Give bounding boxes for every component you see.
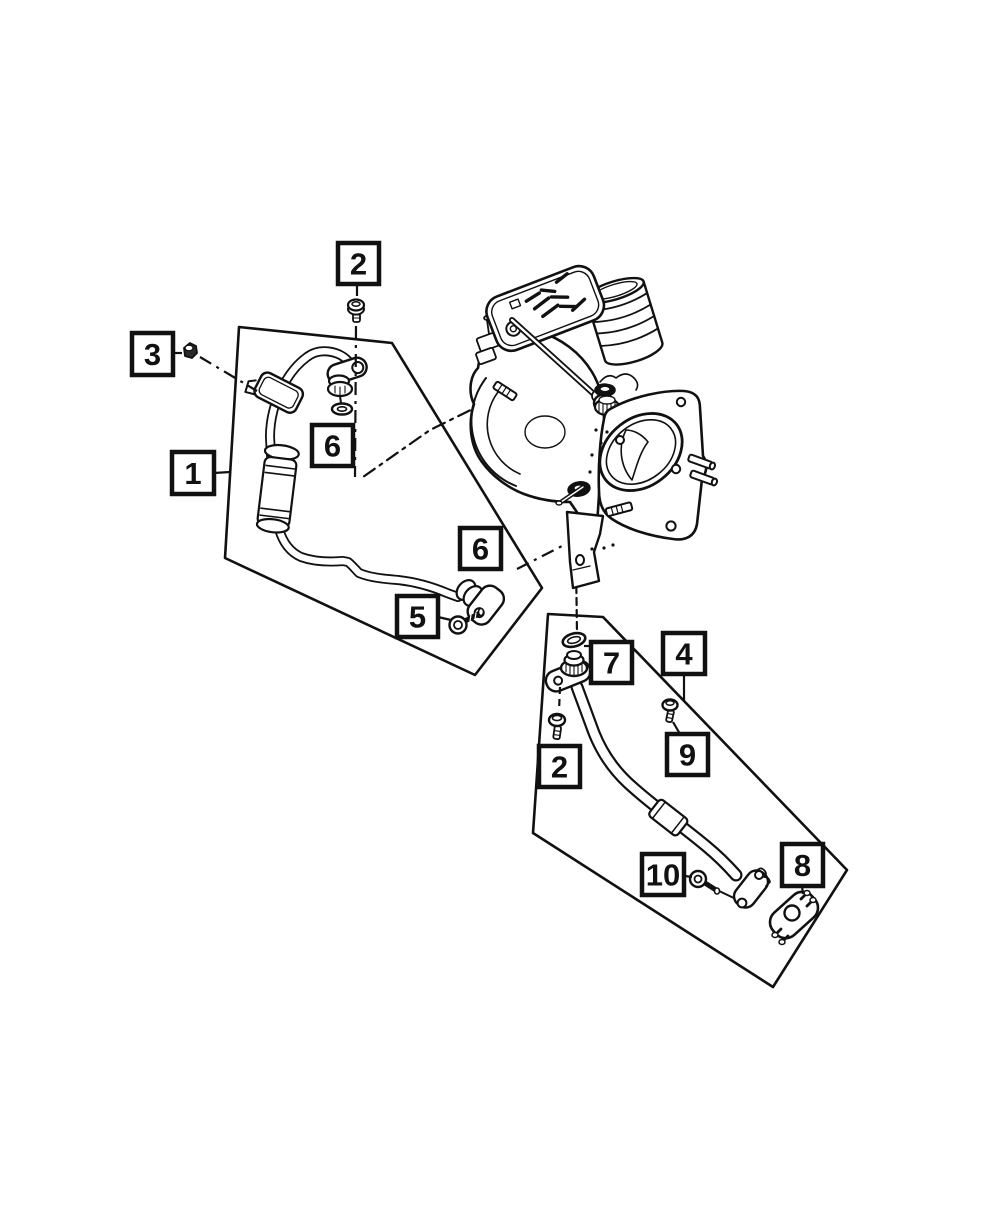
callout-number: 7 — [603, 646, 620, 681]
leader-line — [517, 544, 566, 569]
callout-number: 6 — [324, 429, 341, 464]
feed-tube-banjo-eyelet — [325, 355, 369, 403]
screw-upper — [348, 300, 364, 323]
return-tube-top-fitting — [543, 651, 594, 694]
callout-9[interactable]: 9 — [667, 722, 708, 775]
return-tube-core — [577, 687, 736, 875]
turbo-bracket — [567, 512, 603, 588]
nut-3 — [184, 343, 197, 358]
oring-7 — [561, 631, 587, 650]
screw-lower-2 — [549, 714, 565, 739]
callout-number: 3 — [144, 337, 161, 372]
callout-number: 2 — [350, 247, 367, 282]
callout-number: 1 — [184, 456, 201, 491]
callout-6-lower[interactable]: 6 — [460, 528, 566, 569]
gasket-8 — [765, 886, 824, 944]
leader-line — [559, 687, 560, 711]
parts-diagram-page: 2316657429108 — [0, 0, 1000, 1214]
callout-6-upper[interactable]: 6 — [312, 425, 353, 466]
callout-number: 9 — [679, 738, 696, 773]
callout-4[interactable]: 4 — [663, 633, 705, 701]
callout-10[interactable]: 10 — [642, 854, 692, 895]
feed-tube-braid — [255, 443, 299, 534]
bolt-10 — [690, 871, 720, 894]
washer-upper — [332, 404, 352, 415]
callout-number: 8 — [794, 848, 811, 883]
illustration-layer — [184, 261, 847, 987]
callout-7[interactable]: 7 — [584, 642, 632, 683]
callout-number: 2 — [551, 750, 568, 785]
turbocharger-illustration — [471, 261, 718, 588]
leader-line — [200, 357, 257, 391]
callout-8[interactable]: 8 — [782, 844, 823, 894]
callout-5[interactable]: 5 — [397, 596, 451, 637]
parts-diagram-canvas: 2316657429108 — [0, 0, 1000, 1214]
leader-line — [214, 472, 230, 473]
callout-1[interactable]: 1 — [172, 452, 230, 494]
callout-number: 6 — [472, 532, 489, 567]
callout-number: 5 — [409, 600, 426, 635]
screw-9 — [663, 700, 678, 723]
callout-number: 4 — [675, 637, 693, 672]
callout-number: 10 — [646, 858, 680, 893]
